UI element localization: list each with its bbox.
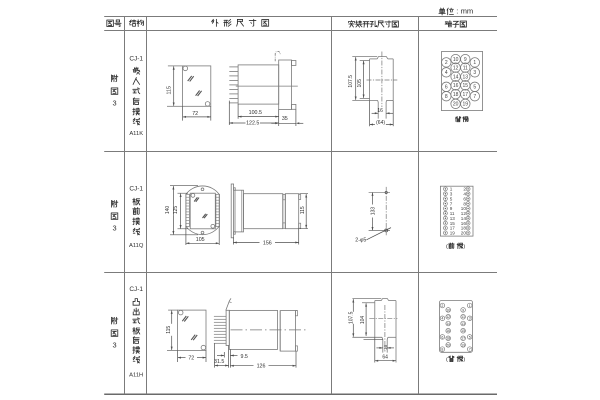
svg-text:15: 15 <box>463 83 469 89</box>
svg-text:9: 9 <box>464 57 467 63</box>
svg-text:104: 104 <box>360 316 366 325</box>
svg-text:6: 6 <box>445 85 448 91</box>
svg-text:4: 4 <box>441 317 443 321</box>
svg-text:16: 16 <box>377 108 383 114</box>
svg-text:100.5: 100.5 <box>249 110 262 116</box>
svg-text:12: 12 <box>446 315 450 319</box>
svg-text:18: 18 <box>446 337 450 341</box>
svg-text:122.5: 122.5 <box>246 121 259 127</box>
svg-text:A11Q: A11Q <box>129 243 144 249</box>
svg-text:2: 2 <box>445 60 448 66</box>
svg-text:3: 3 <box>469 317 471 321</box>
svg-text:14: 14 <box>453 74 459 80</box>
svg-text:115: 115 <box>167 86 173 94</box>
svg-text:3: 3 <box>112 98 116 107</box>
svg-text:72: 72 <box>188 355 194 361</box>
svg-text:CJ-1: CJ-1 <box>129 55 143 62</box>
svg-text:64: 64 <box>382 355 388 361</box>
svg-text:72: 72 <box>192 111 198 117</box>
svg-text:115: 115 <box>166 326 172 334</box>
svg-text:14: 14 <box>446 322 450 326</box>
svg-text::: : <box>456 7 458 16</box>
svg-text:4: 4 <box>445 70 448 76</box>
svg-text:19: 19 <box>461 343 465 347</box>
svg-text:): ) <box>467 117 469 123</box>
svg-text:16: 16 <box>383 345 388 351</box>
svg-text:156: 156 <box>263 240 272 246</box>
svg-text:8: 8 <box>445 94 448 100</box>
svg-text:31.5: 31.5 <box>214 359 224 365</box>
svg-text:CJ-1: CJ-1 <box>129 286 143 293</box>
svg-text:2: 2 <box>441 304 443 308</box>
svg-text:3: 3 <box>112 223 116 232</box>
svg-text:9: 9 <box>462 308 464 312</box>
svg-text:12: 12 <box>453 65 459 71</box>
svg-text:(: ( <box>446 244 448 250</box>
svg-text:2-φ5: 2-φ5 <box>355 237 366 243</box>
svg-text:140: 140 <box>165 206 171 215</box>
svg-text:107.5: 107.5 <box>348 311 354 324</box>
svg-text:3: 3 <box>473 70 476 76</box>
svg-text:): ) <box>463 357 465 363</box>
svg-text:13: 13 <box>463 74 469 80</box>
svg-text:11: 11 <box>461 315 465 319</box>
svg-text:6: 6 <box>441 335 443 339</box>
svg-text:20: 20 <box>461 231 467 236</box>
svg-text:(64): (64) <box>376 120 385 126</box>
svg-text:133: 133 <box>370 207 376 216</box>
svg-text:5: 5 <box>469 335 471 339</box>
svg-text:1: 1 <box>473 60 476 66</box>
svg-text:18: 18 <box>453 92 459 98</box>
svg-text:mm: mm <box>461 7 474 16</box>
svg-text:105: 105 <box>196 237 205 243</box>
svg-text:15: 15 <box>461 329 465 333</box>
svg-text:16: 16 <box>446 329 450 333</box>
svg-text:7: 7 <box>473 94 476 100</box>
svg-text:115: 115 <box>300 206 306 214</box>
svg-text:): ) <box>463 244 465 250</box>
svg-text:8: 8 <box>441 348 443 352</box>
svg-text:10: 10 <box>453 57 459 63</box>
svg-text:126: 126 <box>257 363 266 369</box>
svg-text:17: 17 <box>463 92 469 98</box>
svg-text:16: 16 <box>453 83 459 89</box>
svg-text:A11K: A11K <box>129 131 143 137</box>
svg-text:(: ( <box>446 357 448 363</box>
svg-text:1: 1 <box>469 304 471 308</box>
svg-text:9.5: 9.5 <box>241 354 248 360</box>
svg-text:107.5: 107.5 <box>348 75 354 88</box>
svg-text:7: 7 <box>469 348 471 352</box>
svg-text:19: 19 <box>463 102 469 108</box>
svg-text:CJ-1: CJ-1 <box>129 186 143 193</box>
svg-text:11: 11 <box>463 65 468 71</box>
svg-text:105: 105 <box>357 79 363 88</box>
svg-text:125: 125 <box>173 206 179 215</box>
svg-text:17: 17 <box>461 337 465 341</box>
svg-text:5: 5 <box>473 85 476 91</box>
svg-text:10: 10 <box>446 308 450 312</box>
svg-text:13: 13 <box>461 322 465 326</box>
svg-text:3: 3 <box>112 340 116 349</box>
svg-text:19: 19 <box>450 231 456 236</box>
svg-text:20: 20 <box>446 343 450 347</box>
svg-text:35: 35 <box>282 116 288 122</box>
svg-text:A11H: A11H <box>129 372 143 378</box>
svg-text:20: 20 <box>453 102 459 108</box>
